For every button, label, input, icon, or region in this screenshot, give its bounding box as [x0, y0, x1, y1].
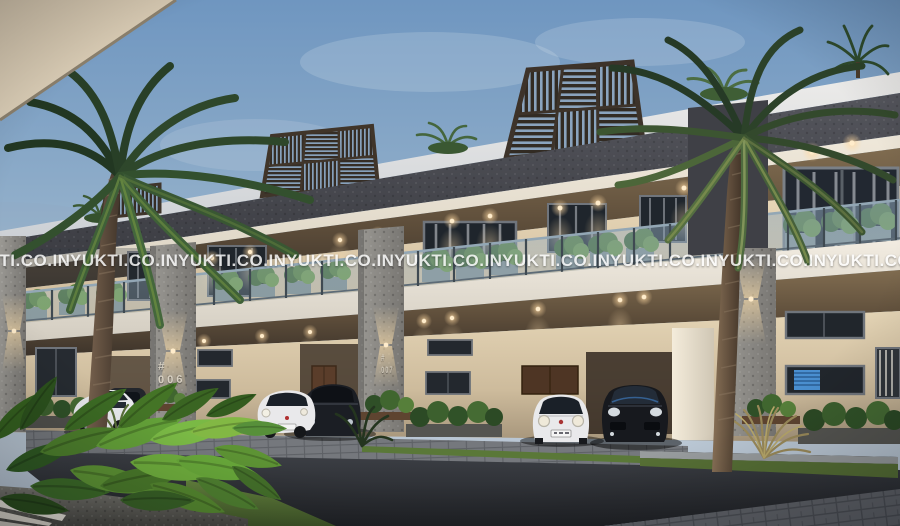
unit-sign-006: # 006	[158, 360, 186, 387]
villa-render-scene	[0, 0, 900, 526]
unit-sign-number: 007	[381, 364, 394, 375]
unit-sign-prefix: #	[381, 353, 394, 365]
vignette	[0, 0, 900, 526]
unit-sign-number: 006	[158, 374, 186, 387]
render-canvas: YUKTI.CO.IN YUKTI.CO.IN YUKTI.CO.IN YUKT…	[0, 0, 900, 526]
unit-sign-007: # 007	[381, 353, 394, 375]
unit-sign-prefix: #	[158, 360, 186, 374]
